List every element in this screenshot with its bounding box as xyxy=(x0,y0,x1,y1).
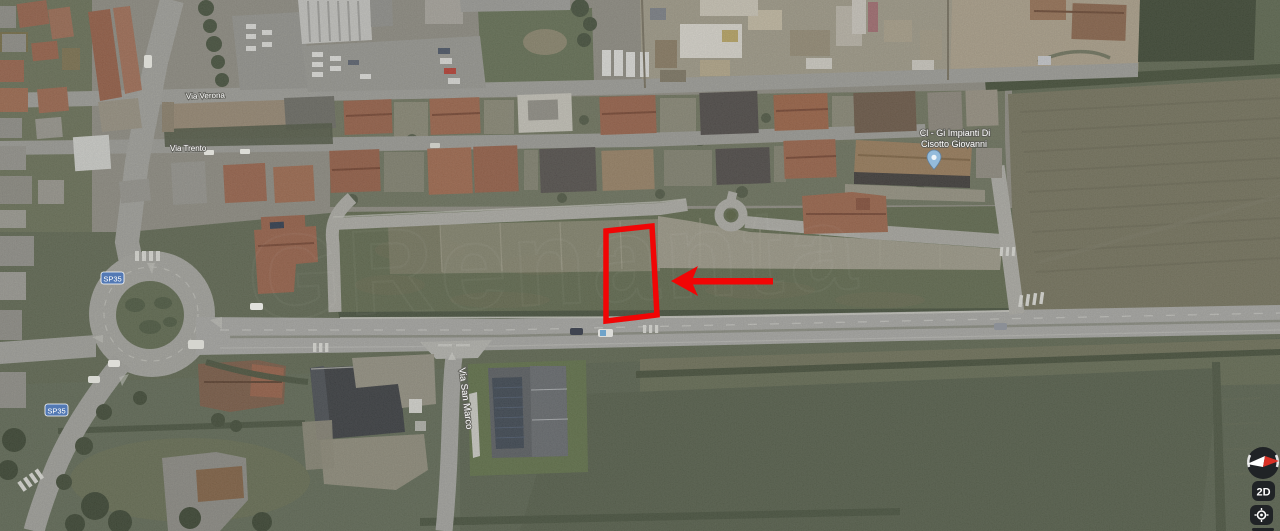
svg-text:Cl - Gi Impianti Di: Cl - Gi Impianti Di xyxy=(920,128,991,138)
svg-text:Via Trento: Via Trento xyxy=(170,144,207,153)
svg-text:2D: 2D xyxy=(1256,487,1270,499)
svg-text:SP35: SP35 xyxy=(103,275,121,284)
svg-text:Via Verona: Via Verona xyxy=(186,91,226,101)
svg-text:SP35: SP35 xyxy=(47,407,65,416)
svg-text:Cisotto Giovanni: Cisotto Giovanni xyxy=(921,139,987,149)
